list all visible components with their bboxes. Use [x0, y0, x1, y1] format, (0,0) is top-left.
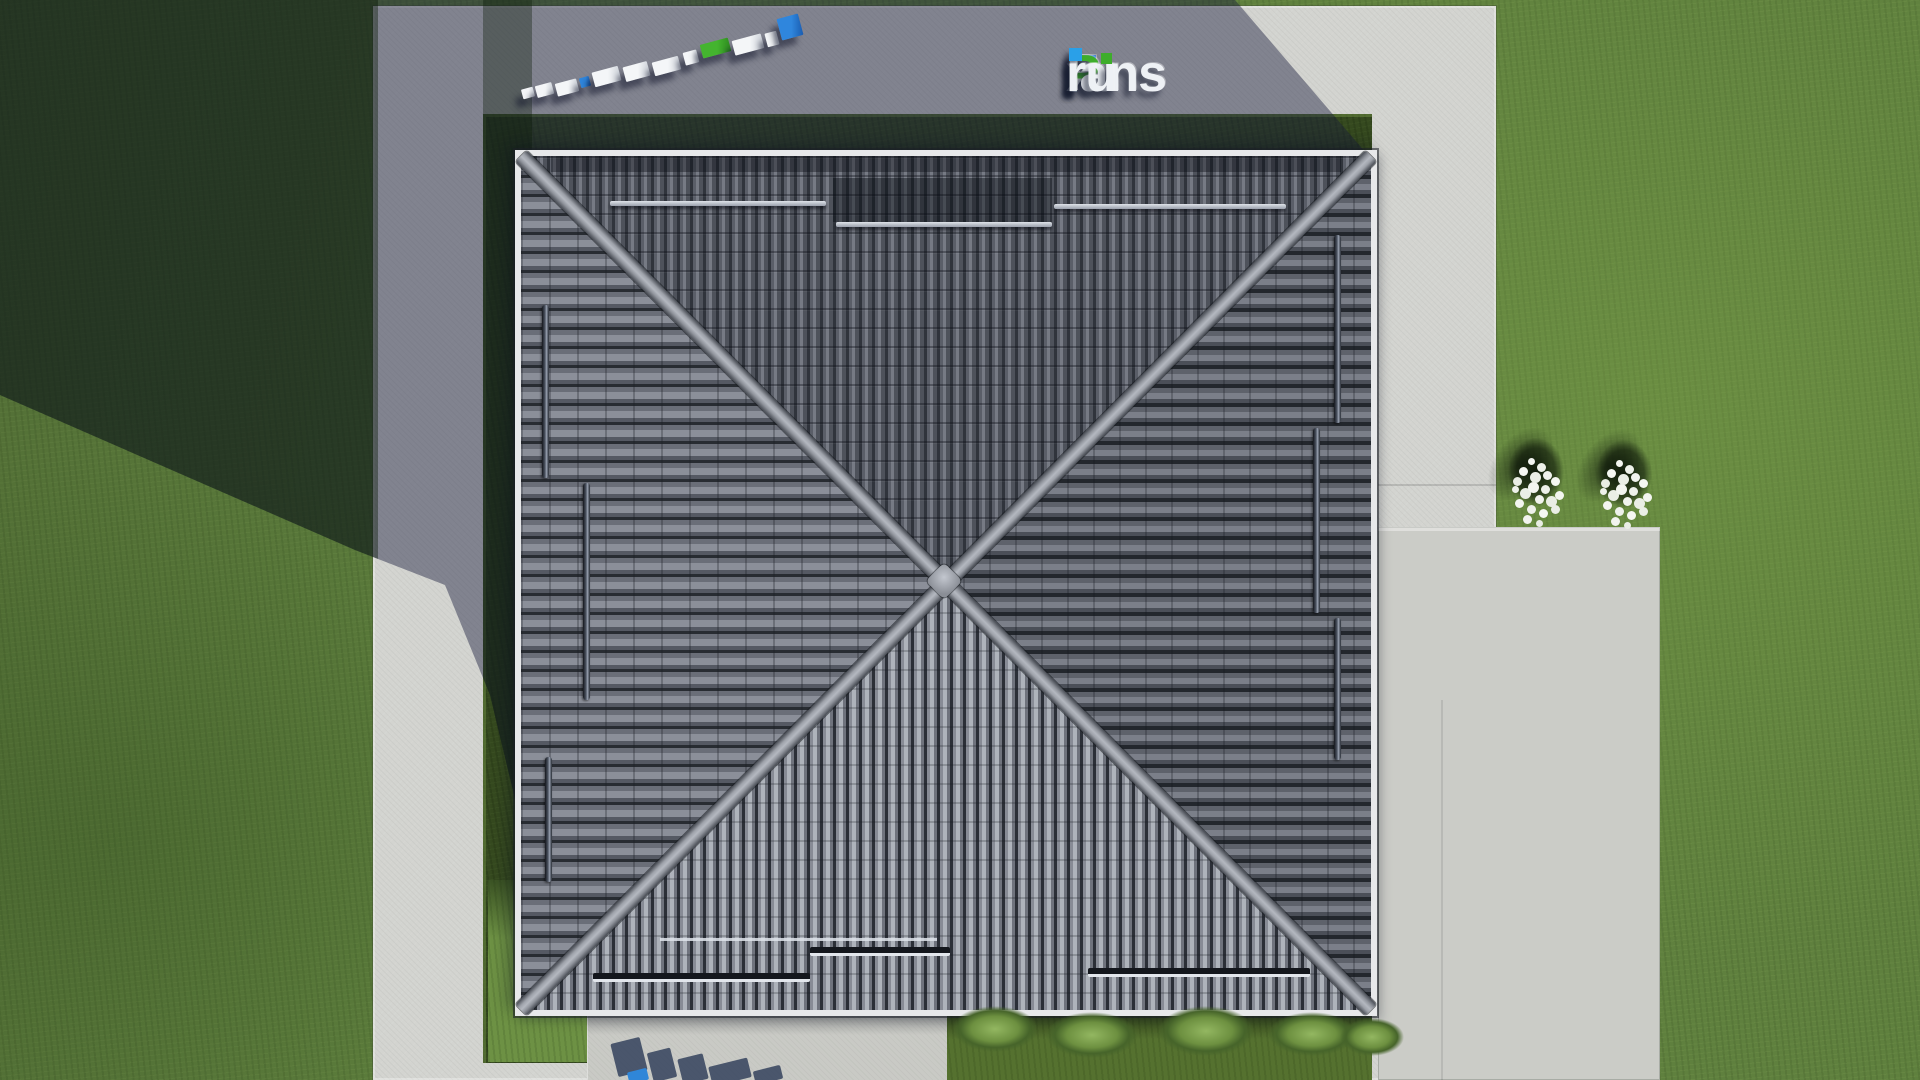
bottom-3d-text-shadow	[0, 0, 1920, 1080]
letter-shadow	[647, 1048, 678, 1080]
letter-shadow	[753, 1065, 784, 1080]
letter-shadow	[677, 1053, 709, 1080]
aerial-house-render: FıxPlansru	[0, 0, 1920, 1080]
logo-i-dot-green	[1101, 53, 1112, 64]
letter-shadow	[708, 1057, 752, 1080]
